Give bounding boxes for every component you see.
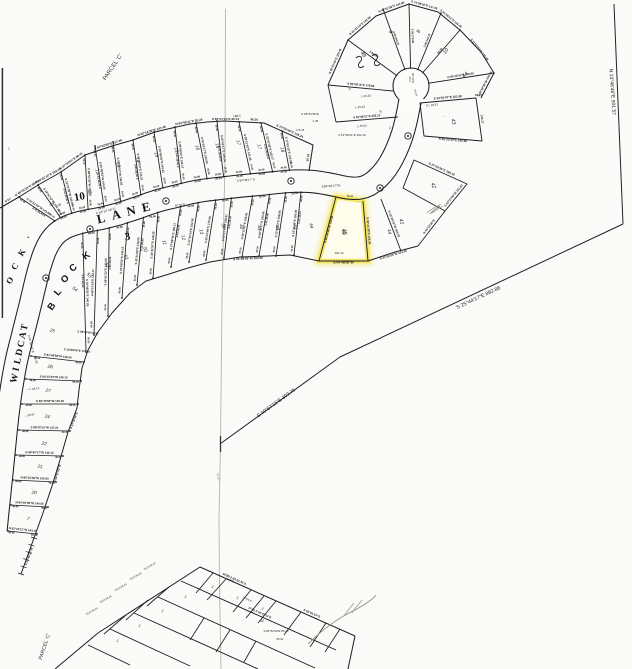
svg-text:36.98: 36.98 <box>97 237 100 244</box>
svg-text:96.36: 96.36 <box>250 117 258 121</box>
svg-text:95.06: 95.06 <box>118 286 121 293</box>
svg-text:N 88°45′17″W 146.16: N 88°45′17″W 146.16 <box>25 450 54 455</box>
svg-text:38.98: 38.98 <box>12 505 19 508</box>
svg-text:45: 45 <box>341 229 346 235</box>
svg-text:38.98: 38.98 <box>15 480 22 483</box>
svg-text:98.45: 98.45 <box>55 456 62 459</box>
svg-text:S 76°08′53″E 140.26: S 76°08′53″E 140.26 <box>85 279 90 307</box>
svg-text:36.98: 36.98 <box>127 227 130 234</box>
svg-text:35.00: 35.00 <box>89 200 92 207</box>
svg-text:176-45: 176-45 <box>296 128 305 132</box>
svg-text:38.98: 38.98 <box>22 430 29 433</box>
svg-text:S 86°45′58″W 145.06: S 86°45′58″W 145.06 <box>36 399 64 403</box>
svg-text:35.00: 35.00 <box>258 171 266 176</box>
svg-text:2: 2 <box>389 126 391 130</box>
svg-text:95.06: 95.06 <box>104 303 107 310</box>
svg-text:36.98: 36.98 <box>157 215 161 222</box>
svg-text:24: 24 <box>43 414 50 420</box>
svg-text:98.45: 98.45 <box>41 507 48 510</box>
svg-text:98.45: 98.45 <box>82 158 85 165</box>
svg-text:35.00: 35.00 <box>236 174 244 179</box>
svg-text:97.76: 97.76 <box>475 93 482 97</box>
svg-text:38.98: 38.98 <box>26 404 33 407</box>
svg-text:3-41.38,40: 3-41.38,40 <box>81 274 85 287</box>
svg-text:36.98: 36.98 <box>280 166 287 170</box>
svg-text:95.06: 95.06 <box>133 274 137 281</box>
svg-text:38.98: 38.98 <box>18 455 25 458</box>
svg-text:95.06: 95.06 <box>90 321 93 328</box>
svg-text:36.98: 36.98 <box>80 242 83 249</box>
svg-text:35.00: 35.00 <box>215 176 223 181</box>
svg-text:3-05.170,48: 3-05.170,48 <box>411 29 415 44</box>
svg-text:98.45: 98.45 <box>62 431 69 434</box>
svg-text:27: 27 <box>44 388 51 394</box>
svg-text:L 45.00: L 45.00 <box>357 124 367 129</box>
svg-text:L 43.43: L 43.43 <box>361 94 371 99</box>
svg-text:21: 21 <box>36 464 43 470</box>
svg-text:22: 22 <box>40 441 47 447</box>
svg-text:86.94: 86.94 <box>277 637 284 641</box>
svg-text:35.00: 35.00 <box>280 169 288 174</box>
svg-text:36.3: 36.3 <box>408 76 412 82</box>
svg-text:N 86°51′38″E: N 86°51′38″E <box>301 112 319 116</box>
svg-text:S 84°52′09″E 85.94: S 84°52′09″E 85.94 <box>263 629 288 633</box>
svg-text:98.45: 98.45 <box>72 381 79 384</box>
svg-text:186-5: 186-5 <box>233 114 241 118</box>
svg-text:S 04°48′08″W: S 04°48′08″W <box>333 261 353 265</box>
svg-text:S 88°05′12″W 147.21: S 88°05′12″W 147.21 <box>30 425 58 430</box>
svg-text:95.06: 95.06 <box>149 267 153 274</box>
svg-text:A 51°58′21″E 202.19: A 51°58′21″E 202.19 <box>338 133 366 137</box>
svg-text:20: 20 <box>30 490 37 496</box>
svg-text:36.98: 36.98 <box>109 233 112 240</box>
svg-text:115-14: 115-14 <box>334 251 343 255</box>
svg-text:95.06: 95.06 <box>87 337 90 344</box>
svg-text:98.45: 98.45 <box>69 404 76 407</box>
svg-text:-1.35: -1.35 <box>312 119 319 123</box>
svg-text:38.98: 38.98 <box>29 379 36 382</box>
svg-text:L 43.43: L 43.43 <box>355 105 365 110</box>
